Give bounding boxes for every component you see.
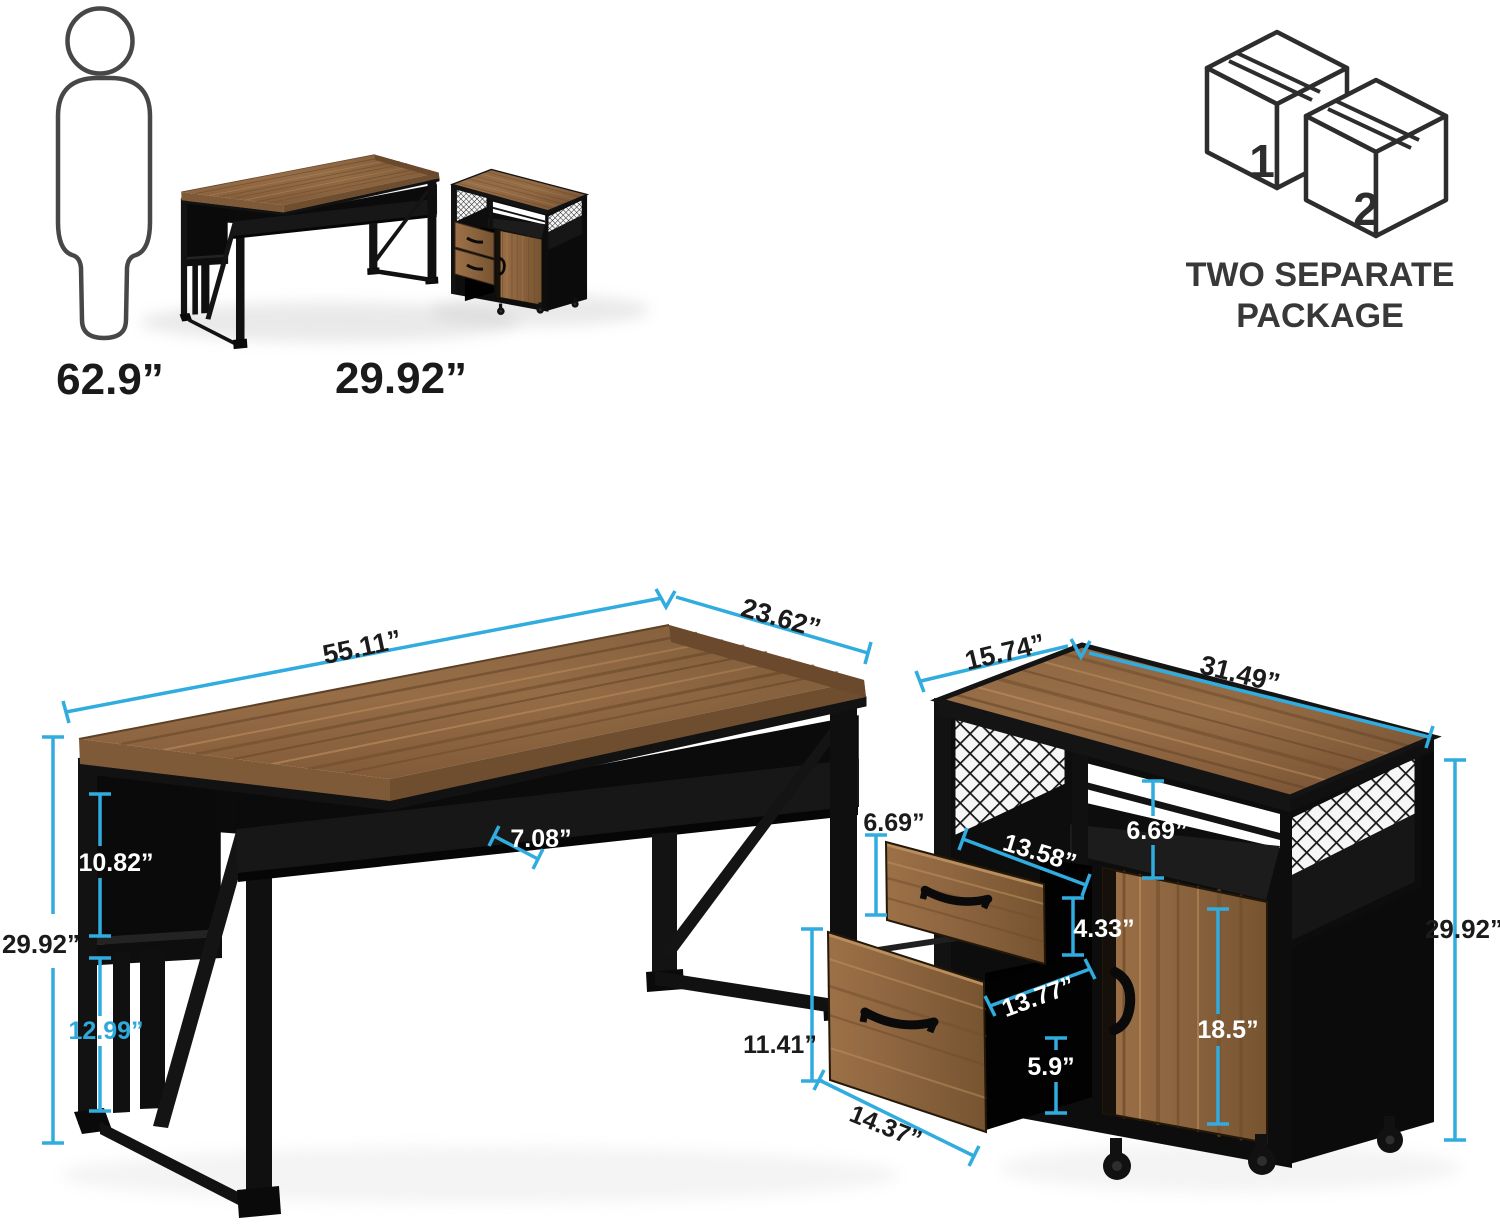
svg-text:2: 2 bbox=[1353, 183, 1379, 235]
svg-text:29.92”: 29.92” bbox=[2, 929, 80, 959]
svg-text:62.9”: 62.9” bbox=[56, 355, 164, 404]
svg-text:TWO SEPARATE: TWO SEPARATE bbox=[1186, 256, 1455, 294]
svg-text:6.69”: 6.69” bbox=[1126, 817, 1187, 845]
svg-text:PACKAGE: PACKAGE bbox=[1236, 297, 1404, 335]
svg-text:18.5”: 18.5” bbox=[1197, 1016, 1258, 1044]
svg-text:1: 1 bbox=[1249, 135, 1275, 187]
svg-text:12.99”: 12.99” bbox=[68, 1017, 143, 1045]
svg-text:29.92”: 29.92” bbox=[1425, 914, 1500, 944]
svg-text:11.41”: 11.41” bbox=[743, 1031, 817, 1059]
svg-text:29.92”: 29.92” bbox=[335, 354, 467, 403]
svg-text:7.08”: 7.08” bbox=[510, 825, 571, 853]
svg-text:4.33”: 4.33” bbox=[1073, 915, 1134, 943]
svg-text:6.69”: 6.69” bbox=[863, 809, 924, 837]
svg-text:5.9”: 5.9” bbox=[1027, 1053, 1074, 1081]
svg-text:10.82”: 10.82” bbox=[78, 849, 153, 877]
